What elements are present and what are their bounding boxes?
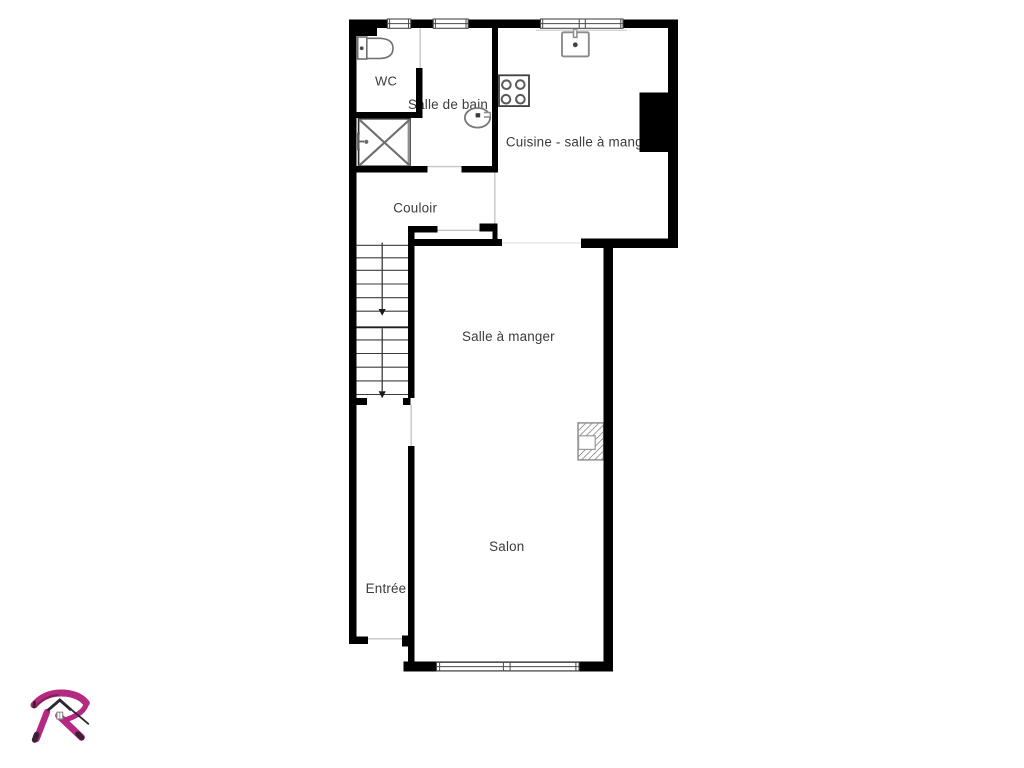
svg-text:Salon: Salon — [489, 539, 524, 554]
svg-text:Cuisine - salle à manger: Cuisine - salle à manger — [506, 134, 656, 149]
svg-text:Couloir: Couloir — [393, 200, 437, 215]
svg-text:WC: WC — [375, 74, 397, 89]
svg-text:Salle à manger: Salle à manger — [462, 329, 555, 344]
svg-text:Entrée: Entrée — [366, 581, 407, 596]
